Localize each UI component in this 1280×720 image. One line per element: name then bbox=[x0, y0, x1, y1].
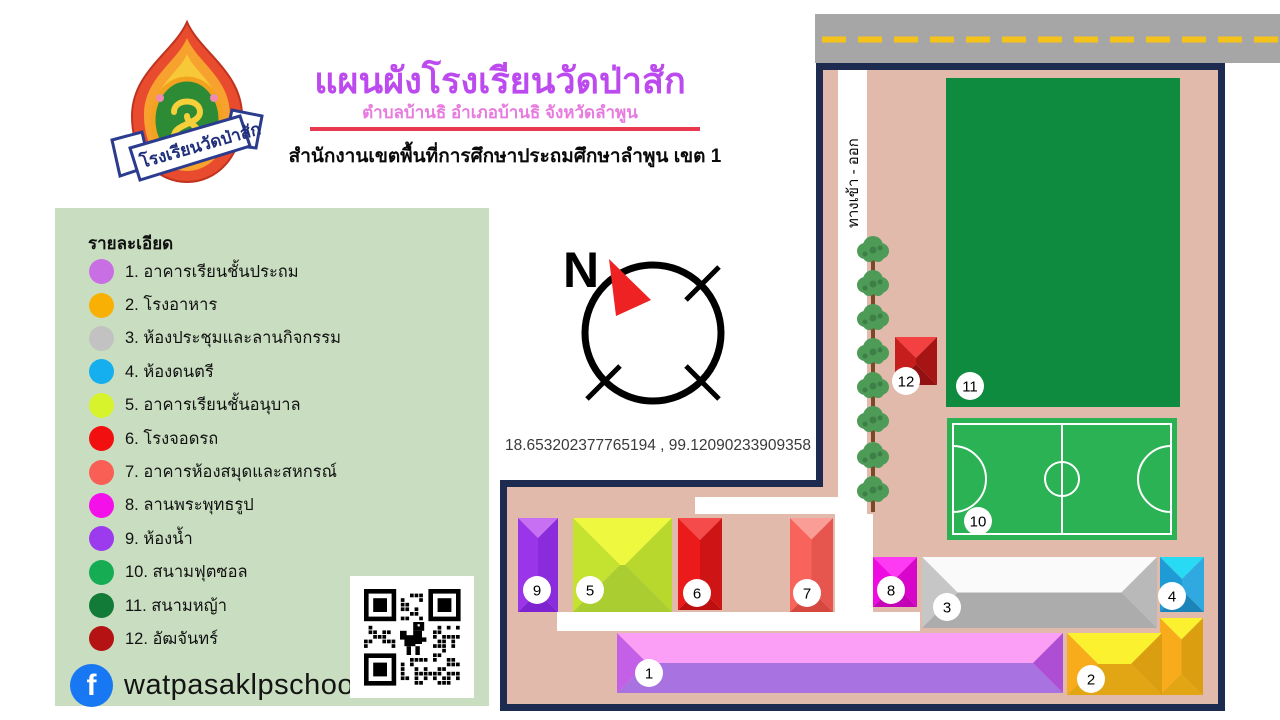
legend-dot-9 bbox=[89, 526, 114, 551]
marker-number: 6 bbox=[693, 586, 701, 603]
entrance-exit-label: ทางเข้า - ออก bbox=[845, 138, 862, 228]
legend-item-9: 9. ห้องน้ำ bbox=[55, 522, 489, 555]
legend-dot-1 bbox=[89, 259, 114, 284]
map-marker-6: 6 bbox=[683, 579, 711, 607]
legend-label: 10. สนามฟุตซอล bbox=[125, 559, 248, 585]
legend-dot-7 bbox=[89, 460, 114, 485]
map-marker-4: 4 bbox=[1158, 582, 1186, 610]
legend-label: 6. โรงจอดรถ bbox=[125, 426, 218, 452]
legend-item-6: 6. โรงจอดรถ bbox=[55, 422, 489, 455]
legend-label: 8. ลานพระพุทธรูป bbox=[125, 492, 254, 518]
legend-item-3: 3. ห้องประชุมและลานกิจกรรม bbox=[55, 322, 489, 355]
school-logo: โรงเรียนวัดป่าสัก bbox=[108, 20, 266, 198]
map-marker-2: 2 bbox=[1077, 665, 1105, 693]
legend-item-1: 1. อาคารเรียนชั้นประถม bbox=[55, 255, 489, 288]
compass-north-letter: N bbox=[563, 242, 599, 298]
legend-label: 2. โรงอาหาร bbox=[125, 292, 217, 318]
compass: N bbox=[563, 242, 721, 401]
marker-number: 11 bbox=[962, 379, 978, 396]
map-marker-1: 1 bbox=[635, 659, 663, 687]
legend-item-8: 8. ลานพระพุทธรูป bbox=[55, 489, 489, 522]
legend-dot-5 bbox=[89, 393, 114, 418]
legend-label: 9. ห้องน้ำ bbox=[125, 526, 193, 552]
map-marker-3: 3 bbox=[933, 593, 961, 621]
building-1 bbox=[617, 633, 1063, 693]
legend-dot-10 bbox=[89, 560, 114, 585]
legend-dot-2 bbox=[89, 293, 114, 318]
marker-number: 7 bbox=[803, 586, 811, 603]
legend-dot-4 bbox=[89, 359, 114, 384]
legend-item-7: 7. อาคารห้องสมุดและสหกรณ์ bbox=[55, 455, 489, 488]
qr-code bbox=[350, 576, 474, 698]
map-marker-12: 12 bbox=[892, 367, 920, 395]
legend-item-2: 2. โรงอาหาร bbox=[55, 288, 489, 321]
facebook-handle: watpasaklpschool bbox=[124, 669, 361, 702]
road bbox=[815, 14, 1280, 63]
grass-field bbox=[946, 78, 1180, 407]
map-marker-8: 8 bbox=[877, 576, 905, 604]
legend-dot-6 bbox=[89, 426, 114, 451]
map-marker-10: 10 bbox=[964, 507, 992, 535]
legend-title: รายละเอียด bbox=[88, 230, 173, 257]
map-marker-5: 5 bbox=[576, 576, 604, 604]
map-marker-7: 7 bbox=[793, 579, 821, 607]
organization-line: สำนักงานเขตพื้นที่การศึกษาประถมศึกษาลำพู… bbox=[280, 141, 730, 171]
marker-number: 4 bbox=[1168, 589, 1176, 606]
legend-label: 4. ห้องดนตรี bbox=[125, 359, 214, 385]
marker-number: 8 bbox=[887, 583, 895, 600]
marker-number: 2 bbox=[1087, 672, 1095, 689]
facebook-icon: f bbox=[70, 664, 113, 707]
legend-dot-12 bbox=[89, 626, 114, 651]
page-subtitle: ตำบลบ้านธิ อำเภอบ้านธิ จังหวัดลำพูน bbox=[280, 99, 720, 126]
marker-number: 5 bbox=[586, 583, 594, 600]
poster-canvas: ทางเข้า - ออก 123456789101112 N 18.65320… bbox=[0, 0, 1280, 720]
marker-number: 10 bbox=[970, 514, 987, 531]
building-3 bbox=[922, 557, 1157, 628]
facebook-row: f watpasaklpschool bbox=[70, 664, 361, 707]
marker-number: 9 bbox=[533, 583, 541, 600]
walkway-lower bbox=[557, 612, 920, 631]
legend-label: 5. อาคารเรียนชั้นอนุบาล bbox=[125, 392, 301, 418]
map-marker-9: 9 bbox=[523, 576, 551, 604]
corridor-upper bbox=[695, 497, 867, 514]
legend-panel: รายละเอียด 1. อาคารเรียนชั้นประถม2. โรงอ… bbox=[55, 208, 489, 706]
gps-coordinates: 18.653202377765194 , 99.12090233909358 bbox=[505, 437, 811, 454]
legend-label: 1. อาคารเรียนชั้นประถม bbox=[125, 259, 299, 285]
marker-number: 3 bbox=[943, 600, 951, 617]
legend-dot-11 bbox=[89, 593, 114, 618]
legend-label: 7. อาคารห้องสมุดและสหกรณ์ bbox=[125, 459, 337, 485]
legend-dot-8 bbox=[89, 493, 114, 518]
marker-number: 1 bbox=[645, 666, 653, 683]
red-divider bbox=[310, 127, 700, 131]
map-marker-11: 11 bbox=[956, 372, 984, 400]
building-2-tower bbox=[1160, 618, 1203, 695]
legend-dot-3 bbox=[89, 326, 114, 351]
legend-label: 12. อัฒจันทร์ bbox=[125, 626, 218, 652]
legend-label: 3. ห้องประชุมและลานกิจกรรม bbox=[125, 325, 341, 351]
legend-label: 11. สนามหญ้า bbox=[125, 593, 227, 619]
marker-number: 12 bbox=[898, 374, 915, 391]
legend-item-5: 5. อาคารเรียนชั้นอนุบาล bbox=[55, 389, 489, 422]
legend-item-4: 4. ห้องดนตรี bbox=[55, 355, 489, 388]
